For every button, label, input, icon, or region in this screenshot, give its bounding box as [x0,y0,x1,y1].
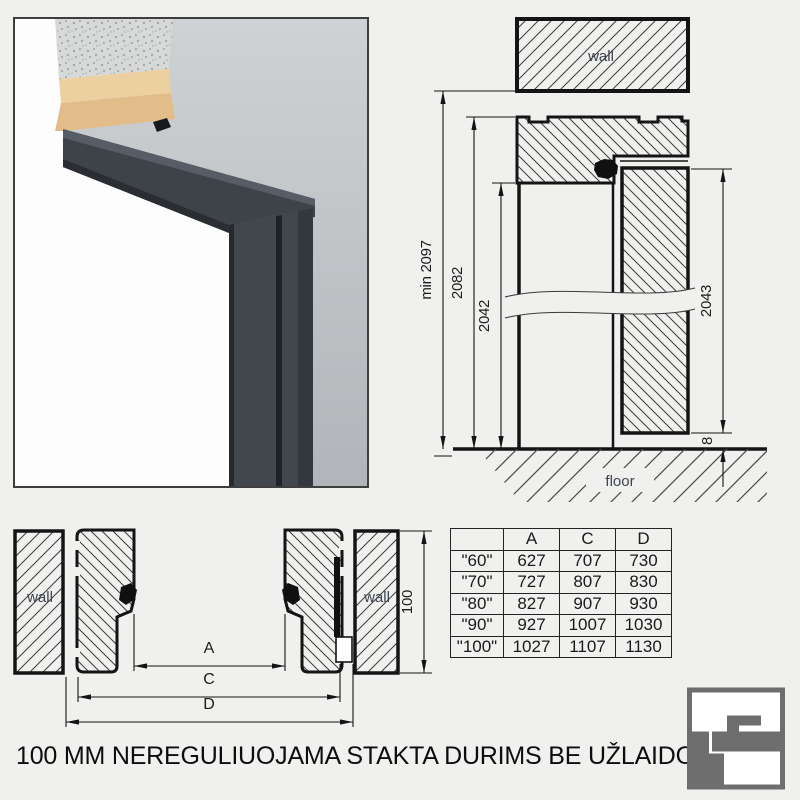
frame-right-notch [339,567,346,576]
technical-drawings: wall floor min [0,0,800,800]
page-title: 100 MM NEREGULIUOJAMA STAKTA DURIMS BE U… [16,742,716,771]
wall-label: wall [587,48,614,65]
table-cell: 707 [560,550,616,572]
brand-logo-icon [687,687,785,790]
table-cell: 827 [504,593,560,615]
wall-left-label: wall [26,589,53,606]
table-cell: 627 [504,550,560,572]
dim-label-leaf: 2043 [698,285,715,317]
arrow-right [272,663,285,668]
table-cell: 1030 [616,615,672,637]
table-header-c: C [560,529,616,551]
arrow-down [440,436,445,449]
arrow-right [340,719,353,724]
arrow-down [498,436,503,449]
table-cell: 1130 [616,636,672,658]
table-cell: "70" [451,572,504,594]
dim-label-c: C [203,671,215,688]
arrow-right [327,694,340,699]
logo-shape-left-lower [692,754,724,785]
logo-shape-main-bar [712,732,780,752]
logo-shape-top-bar [727,716,761,726]
arrow-up [498,183,503,196]
dim-label-d: D [203,696,215,713]
table-row: "90" 927 1007 1030 [451,615,672,637]
anchor-box [336,637,352,662]
table-cell: "100" [451,636,504,658]
table-cell: "90" [451,615,504,637]
table-cell: 1007 [560,615,616,637]
table-cell: 930 [616,593,672,615]
table-cell: 727 [504,572,560,594]
table-cell: "60" [451,550,504,572]
frame-left-notch [73,567,80,576]
table-row: "70" 727 807 830 [451,572,672,594]
table-cell: 907 [560,593,616,615]
table-header-row: A C D [451,529,672,551]
arrow-up [421,531,426,544]
logo-shape-left-upper [692,732,709,754]
arrow-up [471,117,476,130]
dim-label-opening: 2042 [476,300,493,332]
arrow-down [421,660,426,673]
dim-label-a: A [204,640,215,657]
arrow-left [66,719,79,724]
frame-profile-logo-icon [687,687,785,790]
table-header-a: A [504,529,560,551]
vertical-section-drawing: wall floor min [418,19,767,502]
arrow-up [720,169,725,182]
size-table: A C D "60" 627 707 730 "70" 727 807 830 … [450,528,672,658]
logo-shape-stub [727,726,739,732]
table-row: "60" 627 707 730 [451,550,672,572]
arrow-up [440,91,445,104]
table-cell: "80" [451,593,504,615]
table-row: "100" 1027 1107 1130 [451,636,672,658]
table-row: "80" 827 907 930 [451,593,672,615]
dim-label-floor-gap: 8 [699,437,716,445]
table-cell: 830 [616,572,672,594]
table-cell: 807 [560,572,616,594]
frame-left-notch [73,648,80,657]
mounting-bar [334,557,340,637]
table-cell: 730 [616,550,672,572]
arrow-down [720,420,725,433]
frame-right-notch [339,541,346,550]
spec-sheet: wall floor min [0,0,800,800]
wall-right-label: wall [363,589,390,606]
floor-label: floor [605,473,634,490]
frame-left-notch [73,541,80,550]
plan-section-drawing: wall wall 100 [15,530,432,727]
table-cell: 927 [504,615,560,637]
dim-label-min-total: min 2097 [418,240,435,299]
table-header-size [451,529,504,551]
arrow-left [78,694,91,699]
table-cell: 1027 [504,636,560,658]
dim-label-frame-outer: 2082 [449,267,466,299]
table-header-d: D [616,529,672,551]
arrow-down [471,436,476,449]
dim-label-depth: 100 [399,590,416,614]
arrow-left [134,663,147,668]
table-cell: 1107 [560,636,616,658]
